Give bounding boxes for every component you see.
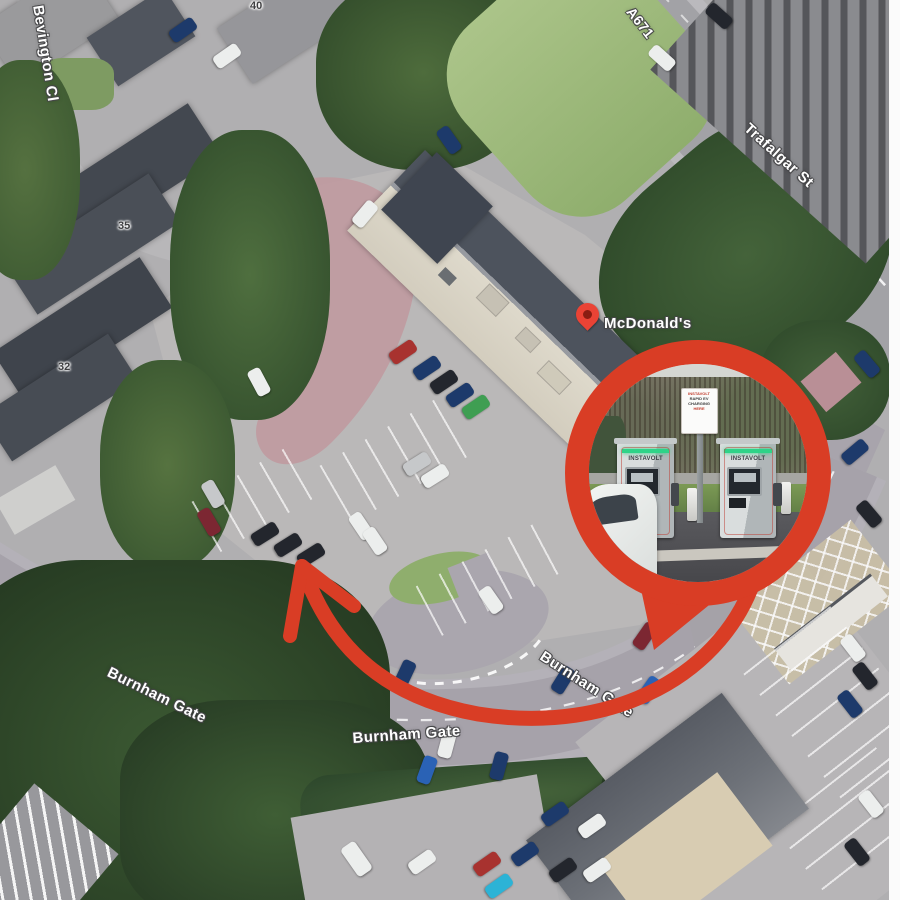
- charger-brand: INSTAVOLT: [617, 456, 674, 462]
- house-number-32: 32: [58, 361, 70, 373]
- image-margin: [889, 0, 900, 900]
- charger-card-reader: [729, 498, 746, 508]
- car: [387, 338, 418, 365]
- charger-brand: INSTAVOLT: [720, 456, 777, 462]
- ev-charger-right: INSTAVOLT: [720, 442, 777, 538]
- parking-lines: [320, 391, 483, 523]
- charger-led-strip: [724, 449, 772, 453]
- sign-line-4: HERE: [682, 406, 717, 411]
- charger-photo: INSTAVOLT RAPID EV CHARGING HERE INSTAVO…: [589, 364, 807, 582]
- pin-ring: INSTAVOLT RAPID EV CHARGING HERE INSTAVO…: [565, 340, 831, 606]
- house-number-40: 40: [250, 0, 262, 12]
- white-van: [574, 484, 657, 589]
- car: [855, 499, 884, 529]
- roof-vent: [438, 267, 457, 286]
- instavolt-sign: INSTAVOLT RAPID EV CHARGING HERE: [681, 388, 718, 434]
- charger-screen: [727, 467, 762, 496]
- cable-holster: [671, 483, 680, 506]
- cable-holster: [773, 483, 782, 506]
- car: [361, 525, 388, 556]
- bollard: [781, 482, 791, 515]
- charger-photo-pin: INSTAVOLT RAPID EV CHARGING HERE INSTAVO…: [565, 340, 831, 606]
- car: [393, 658, 418, 689]
- mcdonalds-poi-label[interactable]: McDonald's: [604, 315, 692, 332]
- sign-pole: [697, 432, 703, 524]
- giveway-markings: [367, 625, 540, 684]
- car: [840, 438, 870, 467]
- car: [631, 621, 659, 652]
- car: [212, 42, 243, 70]
- roof-unit: [516, 328, 540, 352]
- house-number-35: 35: [118, 220, 130, 232]
- outbuilding-roof: [0, 465, 75, 535]
- parking-lines: [416, 516, 575, 636]
- satellite-map: Bevington Cl A671 Trafalgar St Burnham G…: [0, 0, 900, 900]
- bollard: [687, 488, 697, 521]
- charger-led-strip: [622, 449, 670, 453]
- roof-unit: [477, 285, 508, 316]
